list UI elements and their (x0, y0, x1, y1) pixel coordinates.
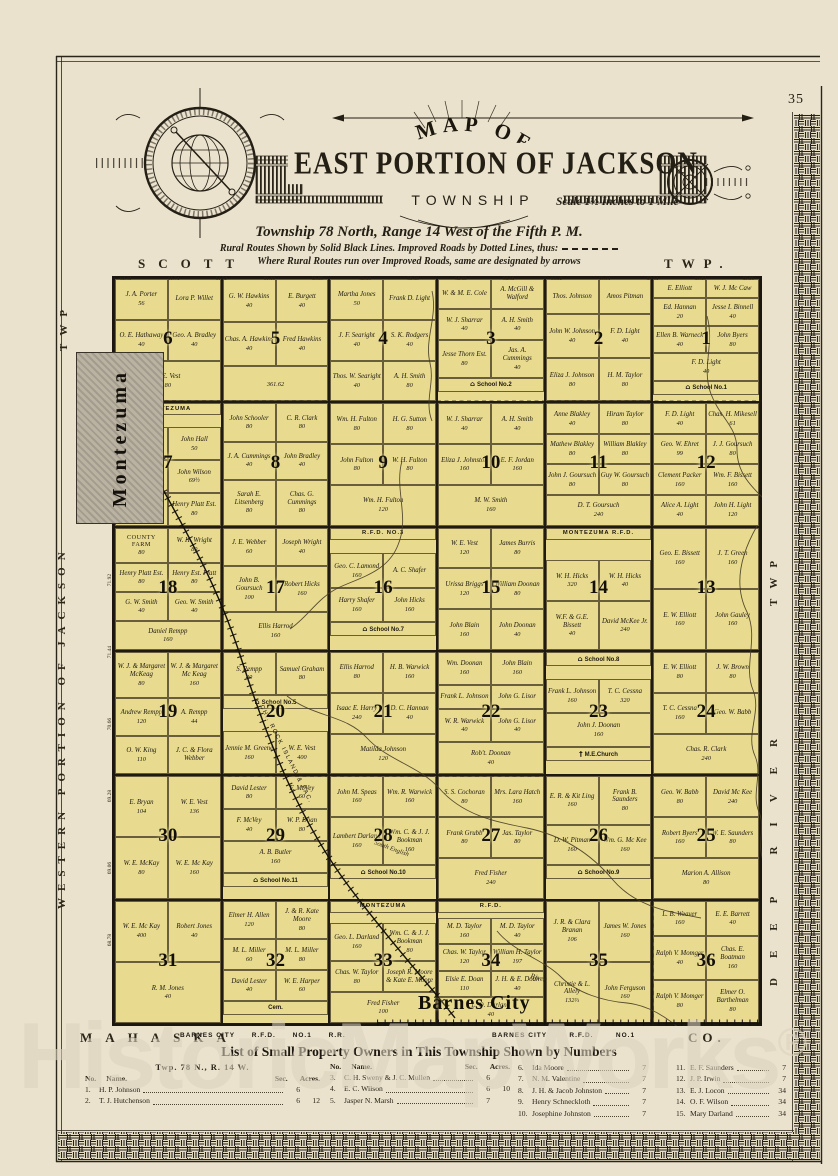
parcel-acres: 104 (137, 808, 146, 815)
railroad-label-left: BARNES CITY R.F.D. NO.1 R.R. (180, 1032, 346, 1039)
parcel-acres: 40 (406, 714, 412, 721)
schoolhouse-icon: ⌂ (470, 380, 475, 388)
parcel: T. C. Cessna160 (653, 693, 706, 734)
col-header-sec: Sec. (465, 1062, 478, 1071)
owner-entry-section: 34 (772, 1108, 786, 1119)
section-23: ⌂School No.8Frank L. Johnson160T. C. Ces… (545, 651, 653, 775)
section-parcels: E. ElliottW. J. Mc CawEd. Hannan20Jesse … (653, 279, 759, 401)
section-29: David Lester80F. McVey60F. McVey40W. P. … (222, 775, 330, 899)
col-header-spacer (127, 1074, 275, 1083)
owners-list-row: 7.N. M. Valentine7 (518, 1073, 666, 1084)
parcel-owner: E. R. & Kit Ling (550, 793, 595, 801)
parcel-acres: 197 (513, 958, 522, 965)
owner-entry-number: 8. (518, 1085, 532, 1096)
parcel-acres: 240 (594, 511, 603, 518)
parcel-acres: 80 (406, 947, 412, 954)
parcel-owner: John J. Goursuch (548, 472, 596, 480)
parcel-acres: 240 (620, 626, 629, 633)
parcel-acres: 60 (299, 793, 305, 800)
parcel: Henry Platt Est.80 (115, 563, 168, 592)
parcel: F. D. Light40 (599, 314, 652, 357)
parcel: Wm. R. Warwick160 (383, 776, 436, 816)
parcel-owner: Elmer O. Barthelman (708, 989, 757, 1005)
section-19: W. J. & Margaret McKeag80W. J. & Margare… (114, 651, 222, 775)
parcel-acres: 160 (271, 632, 280, 639)
owners-list-row: 9.Henry Schneckloth7 (518, 1096, 666, 1107)
section-parcels: S. Rempp40Samuel Graham80⌂School No.5Jen… (223, 652, 329, 774)
parcel-owner: Geo. W. Babb (714, 709, 752, 717)
parcel-acres: 160 (405, 797, 414, 804)
section-14: MONTEZUMA R.F.D.W. H. Hicks320W. H. Hick… (545, 527, 653, 651)
parcel-acres: 80 (246, 793, 252, 800)
col-header-acres: Acres. (490, 1062, 510, 1071)
owner-entry-number: 12. (676, 1073, 690, 1084)
parcel-owner: Chas. G. Cummings (278, 491, 327, 507)
parcel: Wm. F. Bissett160 (706, 464, 759, 495)
school-label: ⌂School No.7 (330, 622, 436, 636)
parcel-owner: H. B. Warwick (390, 664, 429, 672)
parcel-owner: Eliza J. Johnson (550, 372, 595, 380)
section-32: Elmer H. Allen120J. & R. Kate Moore80M. … (222, 900, 330, 1024)
parcel-owner: Samuel Graham (280, 666, 324, 674)
owner-entry-name: Jasper N. Marsh (344, 1095, 394, 1106)
parcel: William H. Taylor197 (491, 944, 544, 970)
parcel: D. C. Hannan40 (383, 693, 436, 734)
section-2: Thos. JohnsonAmos PitmanJohn W. Johnson4… (545, 278, 653, 402)
parcel: E. R. & Kit Ling160 (546, 776, 599, 824)
parcel: J. F. Searight40 (330, 320, 383, 361)
schoolhouse-icon: ⌂ (362, 625, 367, 633)
scale-note: Scale 1½ Inches to 1 Mile (556, 196, 679, 208)
parcel-acres: 80 (569, 450, 575, 457)
cemetery-label: Cem. (223, 1001, 329, 1015)
parcel-owner: Alice A. Light (661, 502, 698, 510)
parcel-owner: A. McGill & Walford (493, 286, 542, 302)
parcel-acres: 80 (354, 978, 360, 985)
parcel-owner: R.F.D. NO.3 (362, 530, 404, 537)
parcel-owner: W. J. & Margaret McKeag (117, 663, 166, 679)
parcel-owner: John Hicks (394, 597, 424, 605)
parcel-acres: 80 (138, 680, 144, 687)
parcel: Sarah E. Litsenberg80 (223, 480, 276, 526)
parcel: W.F. & G.E. Bissett40 (546, 601, 599, 650)
parcel-acres: 80 (461, 798, 467, 805)
owner-entry-number: 10. (518, 1108, 532, 1119)
parcel-acres: 40 (514, 325, 520, 332)
parcel-acres: 160 (271, 858, 280, 865)
parcel: Daniel Rempp160 (115, 621, 221, 650)
owners-list-row: 14.O. F. Wilson34 (676, 1096, 806, 1107)
parcel-acres: 40 (138, 341, 144, 348)
page-number: 35 (788, 92, 804, 108)
parcel-owner: Chas. W. Taylor (443, 949, 486, 957)
owner-entry-number: 2. (85, 1095, 99, 1106)
parcel-owner: William Doonan (495, 581, 540, 589)
parcel: M. L. Miller60 (223, 939, 276, 970)
border-band-right (794, 114, 820, 1160)
parcel-owner: Chas. E. Boatman (708, 946, 757, 962)
parcel-owner: W.F. & G.E. Bissett (548, 614, 597, 630)
parcel-acres: 40 (677, 420, 683, 427)
parcel-owner: John W. Johnson (549, 328, 595, 336)
parcel: Wm. C. & J. J. Bookman80 (383, 923, 436, 962)
parcel: J. & R. Kate Moore80 (276, 901, 329, 940)
parcel-owner: A. B. Butler (259, 849, 291, 857)
parcel: W. J. Sharrar40 (438, 309, 491, 339)
owner-entry-leader (433, 1080, 473, 1081)
parcel-acres: 80 (514, 590, 520, 597)
parcel-acres: 320 (567, 581, 576, 588)
parcel: W. E. Saunders80 (706, 817, 759, 858)
parcel-owner: William H. Taylor (493, 949, 542, 957)
owner-entry-name: E. J. Locon (690, 1085, 725, 1096)
parcel-owner: W. J. Sharrar (446, 416, 482, 424)
parcel-owner: ⌂School No.10 (361, 868, 406, 877)
parcel: M. W. Smith160 (438, 485, 544, 526)
road-label: MONTEZUMA R.F.D. (546, 528, 652, 540)
owner-entry-section: 7 (632, 1073, 646, 1084)
parcel-acres: 80 (299, 423, 305, 430)
parcel: James Burris80 (491, 528, 544, 569)
parcel-owner: Eliza J. Johnston (441, 457, 488, 465)
parcel-acres: 60 (246, 548, 252, 555)
parcel-acres: 40 (514, 985, 520, 992)
parcel-owner: Sarah E. Litsenberg (225, 491, 274, 507)
parcel-acres: 160 (675, 919, 684, 926)
parcel-acres: 100 (244, 594, 253, 601)
parcel-acres: 80 (569, 381, 575, 388)
boundary-label-deep-river: DEEP RIVER (768, 640, 780, 1065)
parcel: D. W. Pitman160 (546, 825, 599, 865)
parcel: Matilda Johnson120 (330, 734, 436, 775)
parcel-acres: 40 (514, 726, 520, 733)
parcel-acres: 160 (460, 465, 469, 472)
parcel: John M. Speas160 (330, 776, 383, 816)
parcel: F. D. Light40 (653, 403, 706, 434)
road-label: R.F.D. (438, 901, 544, 913)
parcel: A. McGill & Walford (491, 279, 544, 309)
parcel-acres: 40 (703, 368, 709, 375)
parcel-acres: 160 (728, 963, 737, 970)
parcel-acres: 160 (728, 620, 737, 627)
parcel-owner: Thos. Johnson (552, 293, 591, 301)
section-parcels: Thos. JohnsonAmos PitmanJohn W. Johnson4… (546, 279, 652, 401)
parcel-acres: 40 (191, 932, 197, 939)
parcel-owner: F. D. Light (610, 328, 639, 336)
section-36: L. B. Weaver160E. E. Barrett40Ralph V. M… (652, 900, 760, 1024)
parcel-acres: 80 (299, 925, 305, 932)
town-montezuma: Montezuma (76, 352, 164, 524)
parcel-owner: ⌂School No.9 (578, 868, 620, 877)
parcel-acres: 120 (460, 958, 469, 965)
section-16: R.F.D. NO.3Geo. C. Lamond160A. C. Shafer… (329, 527, 437, 651)
parcel-owner: Isaac E. Harry (336, 705, 377, 713)
section-25: Geo. W. Babb80David Mc Kee240Robert Byer… (652, 775, 760, 899)
parcel-owner: Jennie M. Greene (225, 745, 273, 753)
parcel-acres: 80 (299, 674, 305, 681)
parcel-acres: 44 (191, 718, 197, 725)
parcel-owner: J. C. & Flora Webber (170, 747, 219, 763)
parcel-owner: MONTEZUMA R.F.D. (563, 530, 634, 537)
parcel: S. K. Rodgers40 (383, 320, 436, 361)
parcel: COUNTY FARM80 (115, 528, 168, 563)
parcel-owner: F. McVey (290, 785, 315, 793)
parcel-acres: 40 (461, 425, 467, 432)
parcel-owner: John Schooler (230, 415, 269, 423)
parcel-acres: 80 (677, 1002, 683, 1009)
parcel-acres: 40 (246, 674, 252, 681)
parcel: G. W. Smith40 (115, 592, 168, 621)
parcel-acres: 80 (461, 838, 467, 845)
parcel-owner: David Lester (231, 978, 266, 986)
owner-entry-name: O. F. Wilson (690, 1096, 728, 1107)
parcel-owner: Wm. R. Warwick (387, 789, 432, 797)
col-header-spacer (372, 1062, 465, 1071)
parcel-owner: Robert Hicks (284, 581, 320, 589)
parcel-acres: 160 (352, 797, 361, 804)
section-parcels: J. R. & Clara Branan106James W. Jones160… (546, 901, 652, 1023)
parcel-acres: 80 (191, 510, 197, 517)
parcel-acres: 240 (486, 879, 495, 886)
parcel-acres: 40 (677, 959, 683, 966)
parcel-owner: E. F. Jordan (501, 457, 534, 465)
parcel-owner: L. B. Weaver (662, 911, 697, 919)
parcel-acres: 80 (461, 360, 467, 367)
parcel-owner: Ed. Hannan (663, 304, 696, 312)
parcel-acres: 80 (677, 798, 683, 805)
parcel-owner: Wm. H. Fulton (337, 416, 377, 424)
parcel: Frank B. Saunders80 (599, 776, 652, 824)
parcel-owner: E. E. Barrett (715, 911, 749, 919)
parcel-owner: Ralph V. Momger (656, 993, 704, 1001)
parcel: A. H. Smith80 (383, 361, 436, 402)
parcel-owner: W. H. Hicks (609, 573, 641, 581)
parcel-acres: 160 (728, 559, 737, 566)
parcel: Rob't. Doonan40 (438, 742, 544, 775)
parcel-acres: 80 (622, 450, 628, 457)
section-parcels: G. W. Hawkins40E. Burgett40Chas. A. Hawk… (223, 279, 329, 401)
parcel-owner: Mathew Blakley (550, 441, 594, 449)
parcel: O. W. King110 (115, 736, 168, 774)
owner-entry-section: 7 (632, 1096, 646, 1107)
parcel: John Wilson69½ (168, 460, 221, 493)
parcel-owner: W. E. Vest (181, 799, 208, 807)
parcel-owner: John Doonan (499, 622, 536, 630)
parcel-owner: G. W. Smith (125, 599, 157, 607)
survey-number-left: 69.06 (107, 862, 113, 874)
parcel-acres: 160 (460, 631, 469, 638)
parcel: F. McVey40 (223, 809, 276, 841)
parcel: Fred Fisher240 (438, 858, 544, 899)
parcel: Jesse I. Binnell40 (706, 298, 759, 325)
section-11: Anne Blakley40Hiram Taylor80Mathew Blakl… (545, 402, 653, 526)
parcel-acres: 40 (246, 345, 252, 352)
parcel-acres: 40 (299, 548, 305, 555)
parcel-owner: John M. Speas (337, 789, 377, 797)
parcel-owner: W. H. Wright (177, 537, 212, 545)
parcel: Marion A. Allison80 (653, 858, 759, 899)
parcel: H. B. Warwick160 (383, 652, 436, 693)
parcel-acres: 60 (299, 986, 305, 993)
parcel: E. Burgett40 (276, 279, 329, 322)
parcel-owner: W. H. Fulton (392, 457, 427, 465)
parcel: Urissa Briggs120 (438, 568, 491, 609)
parcel-owner: Harry Shafer (339, 597, 375, 605)
parcel-acres: 160 (297, 590, 306, 597)
parcel: William Blakley80 (599, 434, 652, 465)
owner-entry-leader (397, 1103, 473, 1104)
parcel: Geo. A. Bradley40 (168, 320, 221, 361)
owner-entry-name: E. C. Wilson (344, 1083, 383, 1094)
parcel: W. H. Hicks40 (599, 560, 652, 601)
parcel-owner: John G. Lisor (498, 693, 536, 701)
parcel: Anne Blakley40 (546, 403, 599, 434)
town-barnes-city: Barnes City (418, 992, 531, 1015)
township-range-line: Township 78 North, Range 14 West of the … (0, 224, 838, 241)
parcel-acres: 80 (569, 481, 575, 488)
survey-number-left: 71.92 (107, 574, 113, 586)
parcel-owner: Wm. Doonan (446, 660, 482, 668)
owner-entry-acres: 10 (490, 1083, 510, 1094)
parcel: J. T. Green160 (706, 528, 759, 589)
parcel: John J. Goursuch80 (546, 464, 599, 495)
owner-entry-name: N. M. Valentine (532, 1073, 580, 1084)
parcel: Clement Packer160 (653, 464, 706, 495)
parcel-acres: 40 (354, 341, 360, 348)
parcel-acres: 160 (163, 636, 172, 643)
parcel-owner: Geo. W. Smith (175, 599, 214, 607)
parcel-owner: W. H. Hicks (556, 573, 588, 581)
parcel-owner: W. P. Doan (287, 817, 317, 825)
parcel-acres: 400 (297, 754, 306, 761)
parcel: E. E. Barrett40 (706, 901, 759, 937)
boundary-label-twp-west: TWP (58, 286, 70, 366)
parcel-owner: Clement Packer (658, 472, 702, 480)
parcel-owner: J. J. Goursuch (713, 441, 753, 449)
parcel: Frank D. Light (383, 279, 436, 320)
parcel-acres: 40 (514, 932, 520, 939)
owners-list-row: 12.J. P. Irwin7 (676, 1073, 806, 1084)
owner-entry-section: 6 (286, 1084, 300, 1095)
parcel-owner: Marion A. Allison (682, 870, 731, 878)
parcel-owner: †M.E.Church (579, 750, 618, 759)
boundary-label-twp-north: TWP. (664, 256, 732, 272)
parcel-acres: 40 (622, 337, 628, 344)
parcel-owner: J. & R. Kate Moore (278, 908, 327, 924)
parcel-acres: 160 (675, 481, 684, 488)
parcel: J. W. Brown80 (706, 652, 759, 693)
parcel: W. E. Mc Kay160 (168, 837, 221, 898)
parcel: S. S. Cochoran80 (438, 776, 491, 817)
parcel-acres: 80 (622, 381, 628, 388)
parcel-owner: M. D. Taylor (500, 923, 535, 931)
parcel: John Schooler80 (223, 403, 276, 441)
parcel-owner: M. L. Miller (232, 947, 265, 955)
section-15: W. E. Vest120James Burris80Urissa Briggs… (437, 527, 545, 651)
col-header-name: Name. (106, 1074, 127, 1083)
parcel-acres: 160 (352, 572, 361, 579)
parcel: David Mc Kee240 (706, 776, 759, 817)
parcel: Thos. W. Searight40 (330, 361, 383, 402)
plat-grid: J. A. Porter56Lora P. WilletO. E. Hathaw… (112, 276, 762, 1026)
parcel-owner: Ralph V. Momger (656, 950, 704, 958)
owner-entry-leader (593, 1105, 629, 1106)
section-18: COUNTY FARM80W. H. Wright80Henry Platt E… (114, 527, 222, 651)
parcel-acres: 40 (299, 302, 305, 309)
owner-entry-leader (583, 1082, 629, 1083)
owner-entry-leader (731, 1105, 769, 1106)
parcel-owner: John Hall (181, 436, 208, 444)
parcel: E. F. Jordan160 (491, 444, 544, 485)
section-parcels: David Lester80F. McVey60F. McVey40W. P. … (223, 776, 329, 898)
parcel: Ralph V. Momger40 (653, 936, 706, 979)
parcel-owner: John Blain (450, 622, 480, 630)
parcel: Eliza J. Johnston160 (438, 444, 491, 485)
parcel-owner: W. E. Vest (288, 745, 315, 753)
section-1: E. ElliottW. J. Mc CawEd. Hannan20Jesse … (652, 278, 760, 402)
parcel-acres: 80 (191, 546, 197, 553)
section-5: G. W. Hawkins40E. Burgett40Chas. A. Hawk… (222, 278, 330, 402)
parcel-acres: 400 (137, 932, 146, 939)
section-parcels: E. Bryan104W. E. Vest136W. E. McKay80W. … (115, 776, 221, 898)
legend-note-1-text: Rural Routes Shown by Solid Black Lines.… (220, 243, 558, 254)
parcel-owner: John Ferguson (605, 985, 646, 993)
parcel: Ellis Harrod160 (223, 612, 329, 650)
section-9: Wm. H. Fulton80H. G. Sutton80John Fulton… (329, 402, 437, 526)
parcel: John Ferguson160 (599, 962, 652, 1023)
parcel-acres: 106 (567, 936, 576, 943)
parcel: Chas. R. Clark240 (653, 734, 759, 775)
parcel-acres: 160 (513, 669, 522, 676)
parcel-owner: David Lester (231, 785, 266, 793)
owner-entry-number: 7. (518, 1073, 532, 1084)
parcel-acres: 80 (729, 341, 735, 348)
parcel-acres: 80 (406, 425, 412, 432)
parcel: R. M. Jones40 (115, 962, 221, 1023)
parcel: William Doonan80 (491, 568, 544, 609)
parcel-owner: John H. Light (714, 502, 752, 510)
parcel-acres: 100 (378, 1008, 387, 1015)
section-parcels: W. E. Vest120James Burris80Urissa Briggs… (438, 528, 544, 650)
parcel: Lora P. Willet (168, 279, 221, 320)
owner-entry-leader (143, 1092, 283, 1093)
parcel-acres: 80 (406, 465, 412, 472)
parcel-acres: 80 (299, 956, 305, 963)
parcel-owner: O. W. King (126, 747, 156, 755)
parcel: Chas. E. Boatman160 (706, 936, 759, 979)
parcel: Amos Pitman (599, 279, 652, 314)
parcel: Christie & L. Allely132⅔ (546, 962, 599, 1023)
parcel-acres: 40 (299, 345, 305, 352)
parcel-owner: John Gauley (715, 612, 750, 620)
owners-list-row: 15.Mary Darland34 (676, 1108, 806, 1119)
church-label: †M.E.Church (546, 747, 652, 761)
parcel-owner: Guy W. Goursuch (601, 472, 649, 480)
parcel-owner: J. E. Webber (232, 539, 266, 547)
parcel-owner: E. W. Elliott (663, 664, 696, 672)
parcel-acres: 110 (137, 756, 146, 763)
owner-entry-number: 9. (518, 1096, 532, 1107)
boundary-label-scott: SCOTT (138, 256, 247, 272)
owner-entry-number: 13. (676, 1085, 690, 1096)
dashed-road-sample (562, 248, 618, 250)
town-montezuma-label: Montezuma (109, 369, 132, 507)
section-parcels: W. J. & Margaret McKeag80W. J. & Margare… (115, 652, 221, 774)
section-parcels: W. & M. E. ColeA. McGill & WalfordW. J. … (438, 279, 544, 401)
owners-list-column: 6.Ida Moore77.N. M. Valentine78.J. H. & … (518, 1062, 666, 1119)
parcel-owner: Chas. H. Mikesell (708, 411, 757, 419)
section-20: S. Rempp40Samuel Graham80⌂School No.5Jen… (222, 651, 330, 775)
